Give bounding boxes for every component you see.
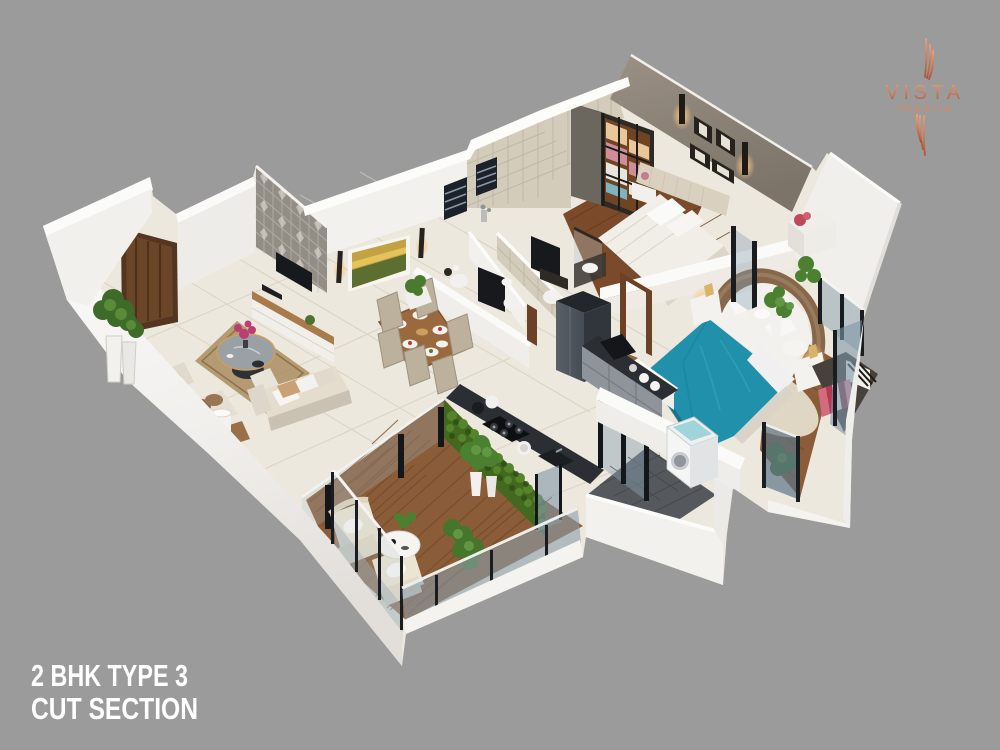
svg-text:CUT SECTION: CUT SECTION bbox=[31, 691, 198, 726]
svg-text:2 BHK TYPE 3: 2 BHK TYPE 3 bbox=[31, 658, 188, 693]
svg-text:imperia: imperia bbox=[897, 103, 952, 115]
svg-text:VISTA: VISTA bbox=[886, 82, 965, 104]
